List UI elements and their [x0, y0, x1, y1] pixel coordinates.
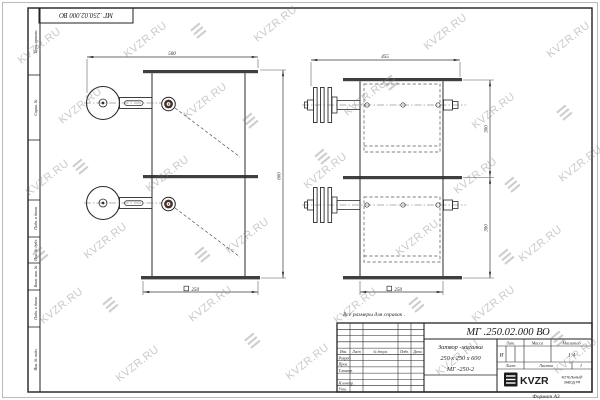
frame-label: Подп. и дата — [33, 207, 38, 231]
sig-header-data: Дата — [412, 350, 422, 354]
reference-note: Все размеры для справок . — [343, 311, 405, 318]
shaft-knob-lower — [162, 197, 176, 211]
header-scale: Масштаб — [561, 341, 581, 346]
dim-front-width-bottom: 250 — [192, 288, 200, 293]
label-sheets: Листов — [538, 363, 553, 368]
sig-row-nkontr: Н.контр. — [338, 380, 354, 385]
part-name-line2: 250 х 250 х 600 — [440, 355, 481, 362]
dim-side-width-bottom: 250 — [395, 288, 403, 293]
sig-row-utv: Утв. — [339, 387, 347, 392]
dim-side-height-bottom: 300 — [485, 224, 490, 232]
side-view: 455 — [302, 55, 494, 295]
frame-label: Инв. № подл. — [33, 348, 38, 371]
logo-text: KVZR — [520, 375, 549, 387]
logo-subtext-1: КОТЕЛЬНЫЙ — [562, 376, 583, 380]
company-logo: KVZR КОТЕЛЬНЫЙ ЗАВОД РФ — [504, 373, 583, 388]
drawing-sheet: Перв. примен. Справ. № Подп. и дата Инв.… — [0, 0, 600, 400]
header-lit: Лит. — [505, 341, 515, 346]
part-name-line1: Затвор -мигалка — [438, 344, 483, 351]
value-sheets: 1 — [580, 363, 582, 368]
sig-row-tkontr: Т.контр. — [339, 368, 354, 373]
label-sheet: Лист — [504, 363, 515, 368]
frame-label: Справ. № — [33, 99, 38, 115]
frame-label: Перв. примен. — [33, 30, 38, 55]
title-block: Изм. Лист № докум. Подп. Дата Разраб. Пр… — [337, 323, 592, 400]
sig-header-podp: Подп. — [399, 350, 409, 354]
format-label: Формат А3 — [532, 394, 560, 400]
drawing-canvas: Перв. примен. Справ. № Подп. и дата Инв.… — [0, 0, 600, 400]
value-scale: 1:4 — [568, 352, 576, 359]
logo-subtext-2: ЗАВОД РФ — [564, 381, 581, 385]
top-stamp-doc-number: МГ .250.02.000 ВО — [59, 11, 114, 18]
sheet-frame: Перв. примен. Справ. № Подп. и дата Инв.… — [3, 3, 598, 398]
sig-header-izm: Изм. — [339, 350, 347, 354]
square-symbol — [184, 286, 189, 291]
frame-label: Инв. № дубл. — [33, 239, 38, 262]
front-view: 500 — [84, 52, 286, 295]
sig-row-prov: Пров. — [338, 362, 349, 367]
value-lit: И — [499, 353, 505, 359]
dim-front-height: 600 — [278, 172, 283, 180]
part-name-line3: МГ -250-2 — [446, 366, 475, 373]
sig-header-docnum: № докум. — [372, 350, 387, 354]
square-symbol — [387, 286, 392, 291]
handwheel-upper — [84, 87, 240, 158]
dim-side-height-top: 300 — [485, 125, 490, 133]
handwheel-lower — [84, 187, 240, 258]
frame-label: Подп. и дата — [33, 297, 38, 321]
shaft-knob-upper — [162, 97, 176, 111]
dim-side-width-top: 455 — [381, 55, 389, 60]
sig-header-list: Лист — [351, 350, 361, 354]
doc-number: МГ .250.02.000 ВО — [465, 327, 550, 338]
wheel-assembly-upper — [302, 88, 466, 123]
frame-label: Взам. инв. № — [33, 265, 38, 287]
dim-front-width-top: 500 — [168, 52, 176, 57]
wheel-assembly-lower — [302, 188, 466, 223]
sig-row-razrab: Разраб. — [338, 355, 352, 360]
header-mass: Масса — [531, 341, 544, 346]
